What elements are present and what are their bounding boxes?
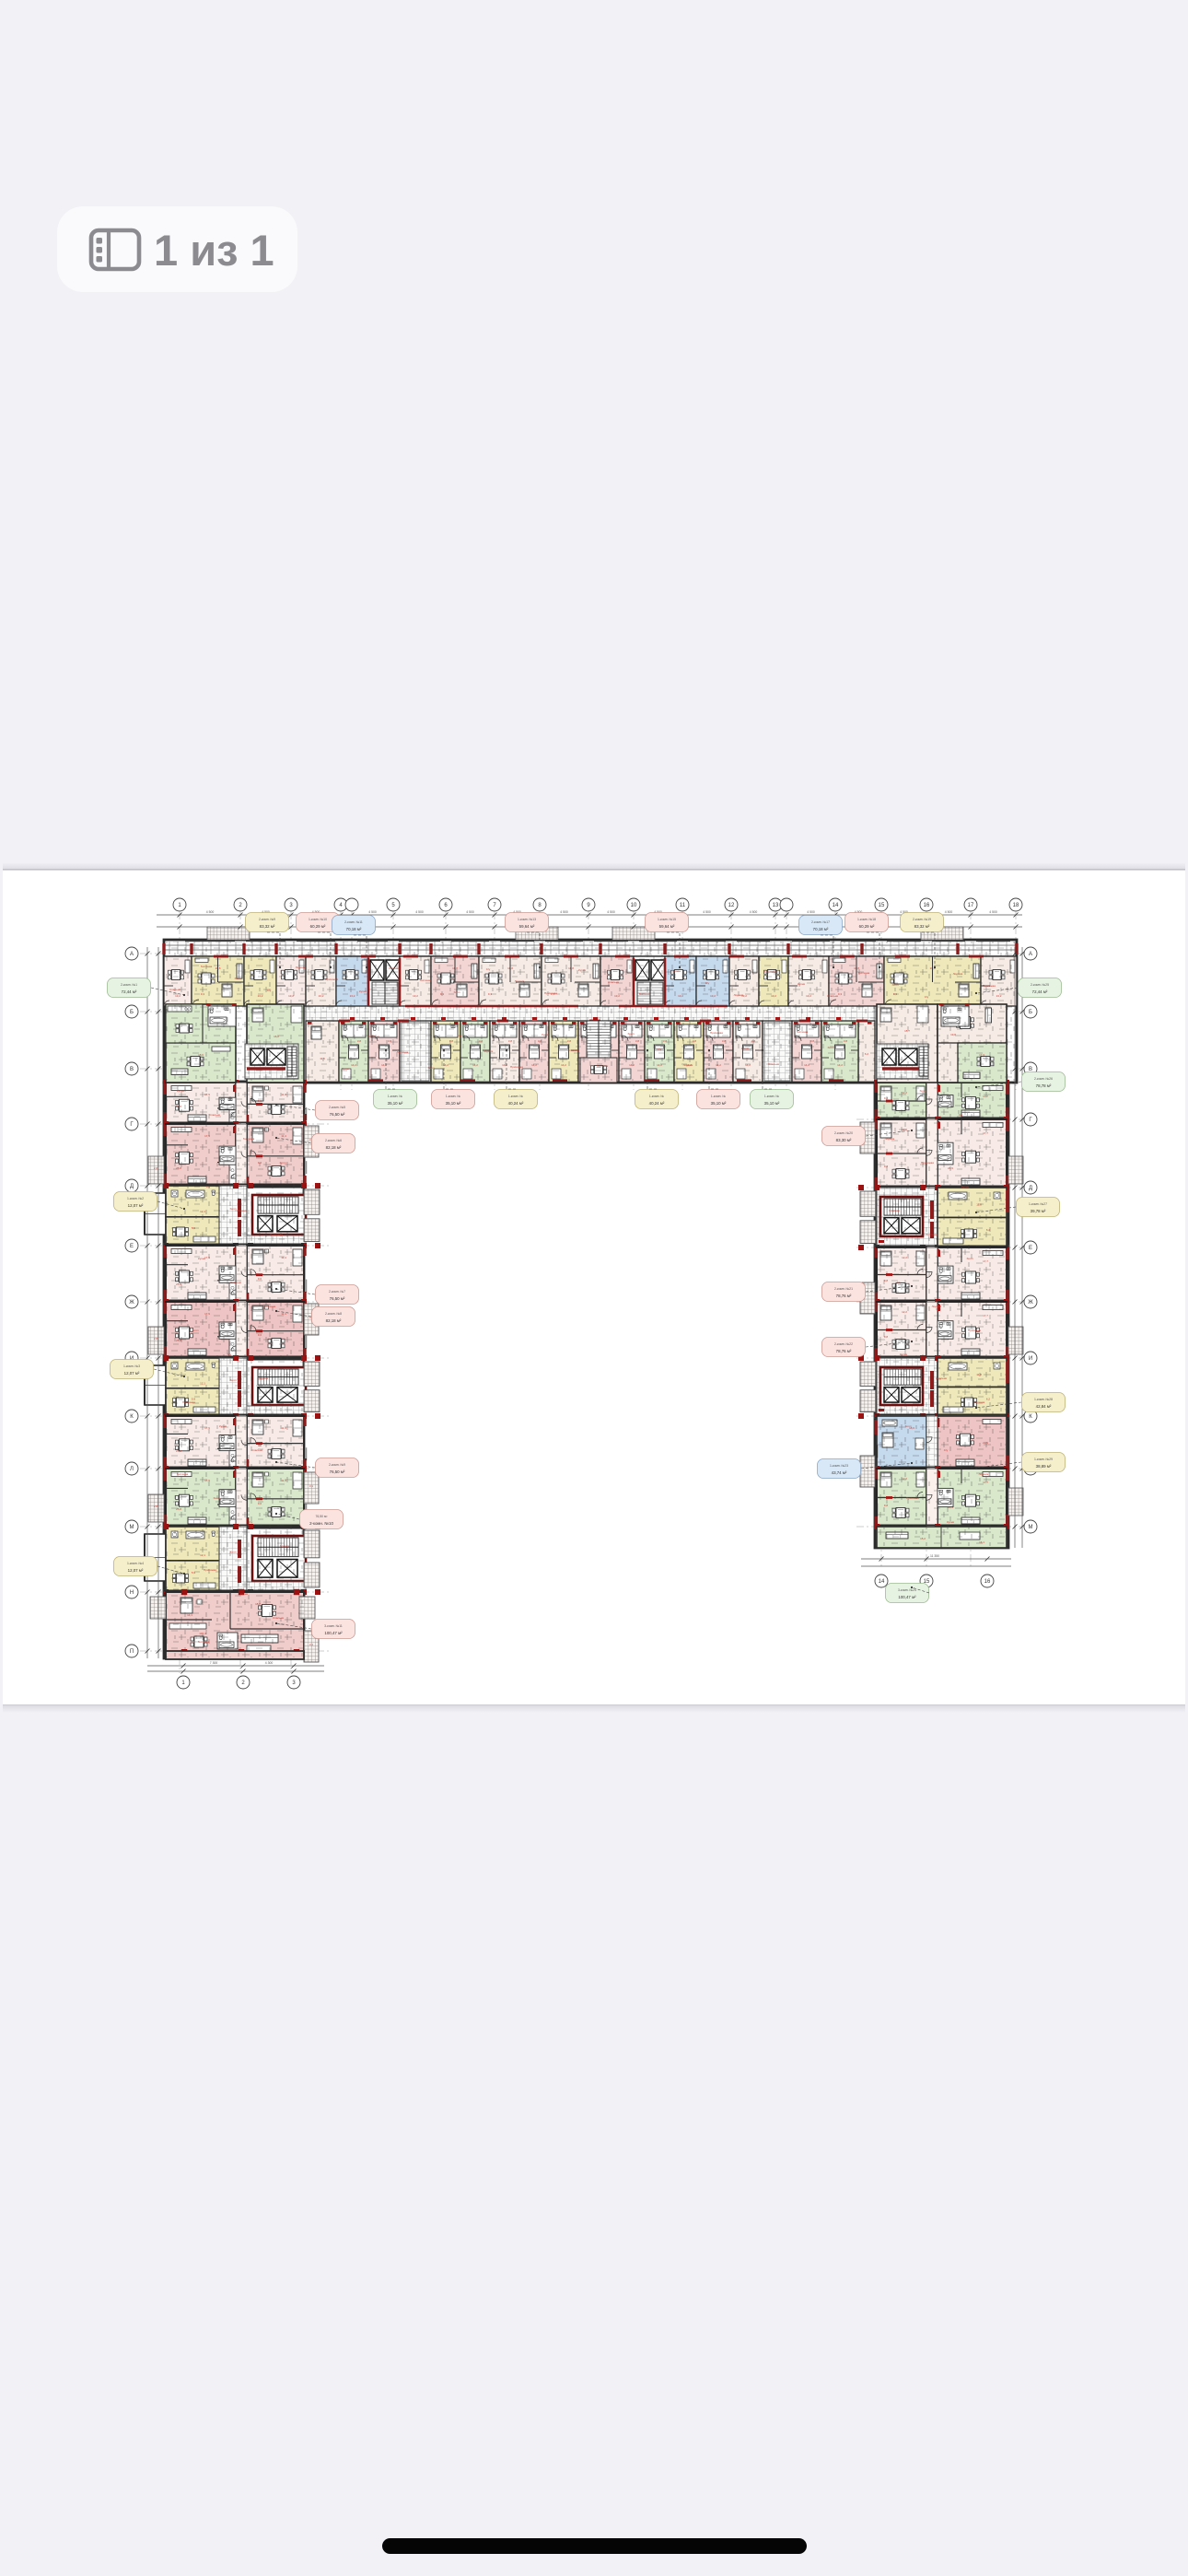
svg-text:1-комн. №10: 1-комн. №10 — [309, 918, 327, 921]
svg-text:4 500: 4 500 — [703, 910, 711, 914]
svg-text:35,10 м²: 35,10 м² — [764, 1101, 780, 1106]
svg-text:12,07 м²: 12,07 м² — [128, 1203, 144, 1208]
svg-text:83,30 м²: 83,30 м² — [836, 1138, 852, 1142]
svg-text:2-комн. №1: 2-комн. №1 — [121, 983, 137, 987]
svg-text:Гостиная: Гостиная — [177, 1472, 189, 1476]
svg-text:2-комн. №19: 2-комн. №19 — [913, 918, 931, 921]
svg-text:4 500: 4 500 — [807, 910, 815, 914]
svg-text:1-комн. №18: 1-комн. №18 — [857, 918, 876, 921]
svg-text:Кухня: Кухня — [177, 1089, 184, 1093]
svg-text:83,32 м²: 83,32 м² — [914, 924, 930, 929]
svg-text:42,84 м²: 42,84 м² — [1036, 1404, 1052, 1409]
svg-text:76,50 м²: 76,50 м² — [330, 1296, 345, 1301]
svg-text:Спальня: Спальня — [768, 1062, 779, 1066]
svg-text:18: 18 — [1013, 903, 1019, 908]
svg-text:Гостиная: Гостиная — [198, 1640, 210, 1644]
svg-text:В: В — [130, 1067, 134, 1072]
svg-text:2,8: 2,8 — [154, 1337, 158, 1341]
svg-text:3,1: 3,1 — [309, 1643, 314, 1646]
svg-text:Д: Д — [1029, 1186, 1032, 1191]
svg-text:Спальня: Спальня — [368, 1035, 379, 1038]
svg-text:100,47 м²: 100,47 м² — [324, 1631, 343, 1635]
svg-text:Лоджия: Лоджия — [734, 993, 744, 997]
svg-text:59,64 м²: 59,64 м² — [659, 924, 675, 929]
svg-text:К: К — [1029, 1414, 1032, 1420]
svg-text:Лоджия: Лоджия — [932, 1305, 942, 1308]
svg-text:60,29 м²: 60,29 м² — [310, 924, 326, 929]
svg-text:60,29 м²: 60,29 м² — [859, 924, 875, 929]
svg-text:С/у: С/у — [959, 1113, 963, 1117]
svg-text:40,24 м²: 40,24 м² — [508, 1101, 524, 1106]
svg-text:Ж: Ж — [129, 1300, 134, 1306]
svg-text:1-комн. №: 1-комн. № — [711, 1095, 727, 1098]
svg-text:Холл: Холл — [627, 1032, 634, 1036]
svg-text:Гостиная: Гостиная — [420, 978, 432, 982]
svg-text:3-комн. №24: 3-комн. №24 — [898, 1588, 916, 1592]
svg-text:Лоджия: Лоджия — [885, 1137, 895, 1141]
svg-text:Прихожая: Прихожая — [204, 1568, 216, 1572]
svg-text:Гостиная: Гостиная — [264, 1305, 276, 1308]
svg-text:Холл: Холл — [966, 1257, 973, 1260]
svg-text:59,64 м²: 59,64 м² — [519, 924, 535, 929]
svg-text:Лоджия: Лоджия — [280, 1544, 290, 1548]
svg-text:76,50 м²: 76,50 м² — [316, 1515, 329, 1518]
svg-text:1-комн. №: 1-комн. № — [446, 1095, 461, 1098]
svg-text:Спальня: Спальня — [608, 980, 619, 984]
svg-text:4 500: 4 500 — [206, 910, 215, 914]
svg-text:3-комн. №11: 3-комн. №11 — [324, 1624, 343, 1628]
svg-text:Прихожая: Прихожая — [763, 970, 776, 974]
svg-text:Кухня: Кухня — [198, 1257, 205, 1260]
svg-text:2-комн. №26: 2-комн. №26 — [1034, 1077, 1053, 1081]
svg-text:Лоджия: Лоджия — [683, 1063, 693, 1067]
svg-text:Спальня: Спальня — [273, 1616, 284, 1620]
svg-text:Холл: Холл — [904, 1424, 911, 1428]
svg-text:Кухня: Кухня — [798, 982, 805, 986]
svg-text:2-комн. №21: 2-комн. №21 — [834, 1287, 853, 1291]
svg-text:М: М — [130, 1525, 134, 1530]
svg-text:Прихожая: Прихожая — [710, 1031, 723, 1035]
svg-text:70,18 м²: 70,18 м² — [346, 927, 362, 931]
svg-text:Спальня: Спальня — [827, 994, 838, 998]
svg-text:1-комн. №4: 1-комн. №4 — [127, 1562, 144, 1565]
svg-text:Холл: Холл — [919, 1089, 926, 1093]
svg-text:4 500: 4 500 — [368, 910, 377, 914]
svg-text:4 300: 4 300 — [265, 1661, 274, 1665]
svg-text:4 500: 4 500 — [945, 910, 953, 914]
svg-text:Гостиная: Гостиная — [973, 1400, 985, 1404]
svg-text:35,10 м²: 35,10 м² — [446, 1101, 461, 1106]
svg-text:Кухня: Кухня — [961, 1185, 969, 1188]
svg-text:35,10 м²: 35,10 м² — [711, 1101, 727, 1106]
svg-text:И: И — [1029, 1356, 1032, 1362]
svg-text:72,44 м²: 72,44 м² — [1032, 989, 1048, 994]
svg-text:2,8: 2,8 — [154, 1505, 158, 1508]
svg-text:Холл: Холл — [827, 1046, 833, 1049]
svg-text:Кухня: Кухня — [578, 968, 586, 972]
svg-text:2-комн. №9: 2-комн. №9 — [329, 1463, 345, 1467]
svg-text:С/у: С/у — [705, 981, 710, 985]
svg-text:Холл: Холл — [279, 1161, 285, 1165]
svg-text:83,32 м²: 83,32 м² — [260, 924, 275, 929]
svg-text:2-комн. №5: 2-комн. №5 — [329, 1106, 345, 1109]
svg-text:Ж: Ж — [1028, 1300, 1033, 1306]
svg-text:10: 10 — [631, 903, 637, 908]
svg-text:1-комн. №27: 1-комн. №27 — [1029, 1202, 1047, 1206]
svg-text:Прихожая: Прихожая — [968, 1329, 981, 1332]
svg-text:Лоджия: Лоджия — [979, 1472, 989, 1476]
svg-text:7 300: 7 300 — [210, 1661, 218, 1665]
svg-text:Холл: Холл — [672, 969, 679, 973]
svg-text:2-комн. №9: 2-комн. №9 — [259, 918, 275, 921]
svg-text:82,18 м²: 82,18 м² — [326, 1318, 342, 1323]
svg-text:С/у: С/у — [227, 1352, 232, 1356]
svg-text:40,24 м²: 40,24 м² — [649, 1101, 665, 1106]
svg-text:12: 12 — [728, 903, 735, 908]
svg-text:А: А — [1029, 952, 1032, 957]
svg-text:Спальня: Спальня — [169, 988, 181, 991]
svg-text:Прихожая: Прихожая — [325, 978, 338, 981]
svg-text:Спальня: Спальня — [209, 1113, 220, 1117]
svg-text:78,76 м²: 78,76 м² — [836, 1349, 852, 1353]
svg-text:Кухня: Кухня — [900, 1352, 907, 1356]
svg-text:Кухня: Кухня — [947, 1520, 954, 1524]
svg-text:Прихожая: Прихожая — [921, 1161, 934, 1165]
svg-text:1 из 1: 1 из 1 — [154, 226, 274, 275]
svg-text:С/у: С/у — [944, 1448, 949, 1452]
svg-text:4 500: 4 500 — [466, 910, 474, 914]
svg-text:Гостиная: Гостиная — [797, 1030, 809, 1034]
svg-text:2-комн. №17: 2-комн. №17 — [811, 920, 830, 924]
svg-text:Прихожая: Прихожая — [182, 1400, 195, 1404]
svg-text:Гостиная: Гостиная — [639, 992, 651, 996]
svg-text:Прихожая: Прихожая — [510, 1065, 523, 1069]
svg-text:2-комн. №20: 2-комн. №20 — [834, 1131, 853, 1135]
svg-text:2,8: 2,8 — [154, 1166, 158, 1170]
svg-text:Прихожая: Прихожая — [906, 1496, 919, 1500]
svg-text:М: М — [1029, 1525, 1033, 1530]
svg-text:13: 13 — [773, 903, 779, 908]
svg-text:С/у: С/у — [249, 1520, 253, 1524]
svg-text:78,78 м²: 78,78 м² — [1036, 1083, 1052, 1088]
svg-text:16: 16 — [984, 1579, 991, 1585]
svg-text:1-комн. №29: 1-комн. №29 — [1034, 1458, 1053, 1461]
svg-text:Кухня: Кухня — [741, 1047, 749, 1050]
svg-text:С/у: С/у — [897, 1281, 902, 1284]
svg-text:Прихожая: Прихожая — [983, 984, 996, 988]
svg-text:Холл: Холл — [891, 983, 898, 987]
svg-text:Лоджия: Лоджия — [238, 1209, 248, 1212]
svg-text:4 500: 4 500 — [607, 910, 615, 914]
svg-text:Холл: Холл — [453, 990, 460, 994]
svg-text:2-комн. №10: 2-комн. №10 — [309, 1521, 333, 1526]
svg-text:А: А — [130, 952, 134, 957]
svg-text:Спальня: Спальня — [568, 1048, 579, 1052]
svg-text:Лоджия: Лоджия — [296, 966, 306, 969]
svg-text:3,1: 3,1 — [309, 1484, 314, 1488]
svg-text:1-комн. №23: 1-комн. №23 — [830, 1464, 848, 1468]
svg-text:С/у: С/у — [925, 995, 929, 999]
svg-text:Лоджия: Лоджия — [515, 979, 525, 983]
svg-text:39,78 м²: 39,78 м² — [1031, 1209, 1046, 1213]
svg-text:14: 14 — [833, 903, 839, 908]
svg-text:С/у: С/у — [658, 1048, 662, 1051]
svg-text:Кухня: Кухня — [359, 989, 367, 993]
svg-text:Б: Б — [1029, 1010, 1032, 1015]
svg-text:38,89 м²: 38,89 м² — [1036, 1464, 1052, 1469]
svg-text:С/у: С/у — [486, 967, 491, 971]
svg-text:2-комн. №8: 2-комн. №8 — [325, 1312, 342, 1316]
svg-text:100,47 м²: 100,47 м² — [898, 1595, 916, 1599]
svg-text:2-комн. №25: 2-комн. №25 — [1031, 983, 1049, 987]
svg-text:1-комн. №2: 1-комн. №2 — [127, 1197, 144, 1200]
svg-text:Спальня: Спальня — [889, 1209, 900, 1212]
svg-text:1-комн. №: 1-комн. № — [649, 1095, 665, 1098]
svg-text:Прихожая: Прихожая — [270, 1233, 283, 1236]
svg-text:Спальня: Спальня — [936, 1376, 947, 1380]
svg-text:Д: Д — [130, 1184, 134, 1189]
svg-text:Гостиная: Гостиная — [397, 1050, 409, 1054]
svg-text:2-комн. №11: 2-комн. №11 — [344, 920, 363, 924]
svg-text:16: 16 — [924, 903, 930, 908]
svg-text:Кухня: Кухня — [542, 1033, 549, 1036]
svg-text:Спальня: Спальня — [389, 966, 400, 970]
svg-text:П: П — [130, 1649, 134, 1655]
svg-text:1-комн. №3: 1-комн. №3 — [123, 1364, 140, 1368]
svg-text:4 500: 4 500 — [560, 910, 568, 914]
svg-text:2-комн. №6: 2-комн. №6 — [325, 1139, 342, 1142]
svg-text:72,44 м²: 72,44 м² — [122, 989, 137, 994]
svg-text:Гостиная: Гостиная — [926, 1233, 938, 1236]
svg-text:С/у: С/у — [267, 989, 272, 992]
svg-text:Гостиная: Гостиная — [858, 971, 870, 975]
svg-text:Л: Л — [130, 1467, 134, 1472]
svg-text:17: 17 — [968, 903, 974, 908]
svg-text:4 500: 4 500 — [989, 910, 997, 914]
svg-text:1-комн. №15: 1-комн. №15 — [658, 918, 676, 921]
svg-text:Гостиная: Гостиная — [597, 1064, 609, 1068]
svg-text:Гостиная: Гостиная — [243, 1137, 255, 1141]
svg-text:Н: Н — [130, 1590, 134, 1596]
svg-text:11 350: 11 350 — [930, 1554, 939, 1558]
svg-text:12,07 м²: 12,07 м² — [128, 1568, 144, 1573]
svg-text:Е: Е — [130, 1244, 134, 1249]
svg-text:Спальня: Спальня — [251, 1448, 262, 1452]
svg-text:14: 14 — [879, 1579, 885, 1585]
svg-text:2-комн. №22: 2-комн. №22 — [834, 1342, 853, 1346]
svg-text:Гостиная: Гостиная — [201, 965, 213, 968]
svg-text:Е: Е — [1029, 1246, 1032, 1251]
svg-text:70,18 м²: 70,18 м² — [813, 927, 829, 931]
svg-text:Лоджия: Лоджия — [259, 1376, 269, 1380]
svg-text:Кухня: Кухня — [240, 1592, 248, 1596]
svg-text:1-комн. №: 1-комн. № — [764, 1095, 780, 1098]
svg-text:1-комн. №28: 1-комн. №28 — [1034, 1398, 1053, 1401]
svg-text:Лоджия: Лоджия — [483, 1049, 494, 1053]
svg-text:82,18 м²: 82,18 м² — [326, 1145, 342, 1150]
svg-text:4 500: 4 500 — [415, 910, 424, 914]
svg-text:1-комн. №: 1-комн. № — [508, 1095, 524, 1098]
svg-text:Кухня: Кухня — [342, 1067, 349, 1071]
svg-text:Б: Б — [130, 1010, 134, 1015]
svg-text:К: К — [130, 1414, 134, 1420]
svg-text:4 500: 4 500 — [750, 910, 758, 914]
svg-text:Спальня: Спальня — [230, 1281, 241, 1284]
svg-text:1-комн. №: 1-комн. № — [388, 1095, 403, 1098]
svg-text:76,50 м²: 76,50 м² — [330, 1112, 345, 1117]
svg-text:Холл: Холл — [427, 1066, 434, 1070]
svg-text:12,07 м²: 12,07 м² — [124, 1371, 140, 1376]
svg-text:Прихожая: Прихожая — [544, 991, 557, 995]
svg-text:76,50 м²: 76,50 м² — [330, 1469, 345, 1474]
svg-text:Холл: Холл — [192, 1329, 198, 1332]
svg-text:78,76 м²: 78,76 м² — [836, 1294, 852, 1298]
svg-text:35,10 м²: 35,10 м² — [388, 1101, 403, 1106]
svg-text:11: 11 — [680, 903, 686, 908]
svg-text:С/у: С/у — [458, 1034, 462, 1037]
svg-text:2-комн. №7: 2-комн. №7 — [329, 1290, 345, 1294]
svg-text:Холл: Холл — [213, 1496, 219, 1500]
svg-text:Кухня: Кухня — [219, 1424, 227, 1428]
svg-text:С/у: С/у — [206, 1185, 211, 1188]
svg-text:Холл: Холл — [234, 977, 240, 980]
svg-text:43,74 м²: 43,74 м² — [832, 1470, 847, 1475]
svg-text:1-комн. №13: 1-комн. №13 — [518, 918, 536, 921]
svg-text:15: 15 — [879, 903, 885, 908]
svg-text:Лоджия: Лоджия — [953, 972, 963, 976]
